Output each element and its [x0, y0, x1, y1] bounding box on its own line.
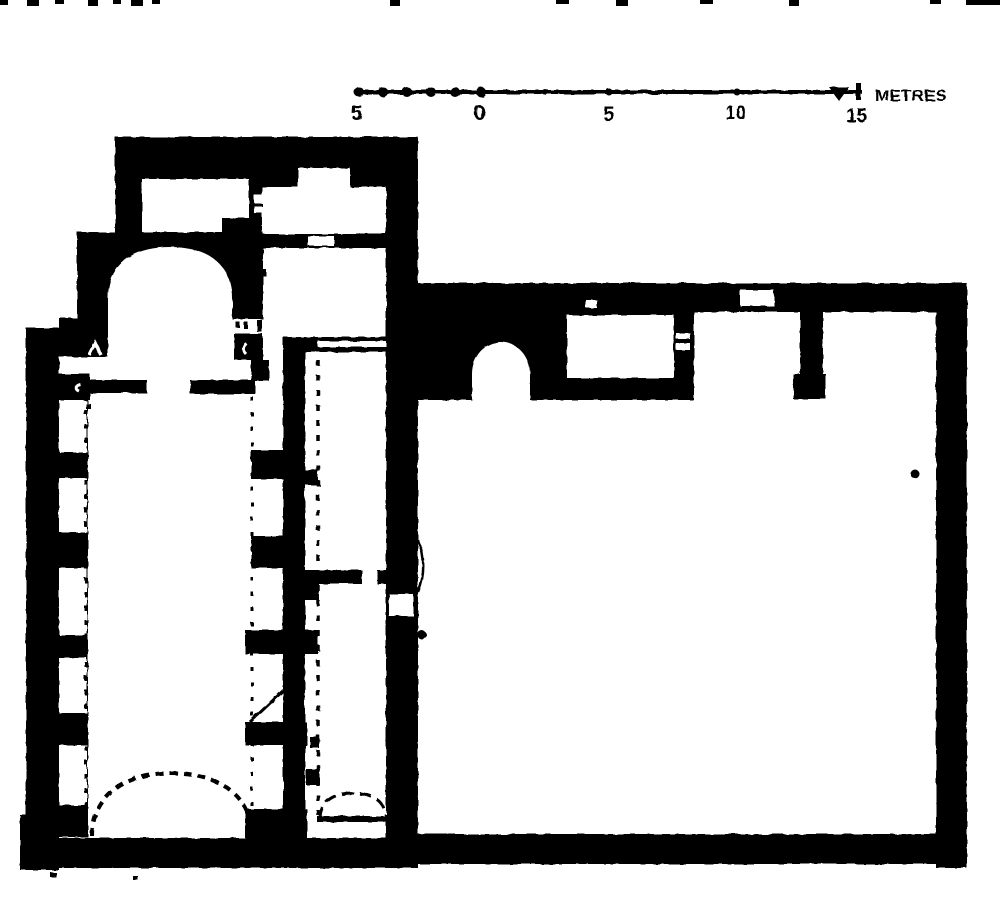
- svg-text:5: 5: [351, 102, 363, 125]
- svg-text:5: 5: [603, 103, 615, 126]
- svg-text:METRES: METRES: [875, 88, 947, 105]
- svg-text:10: 10: [725, 103, 746, 124]
- svg-text:0: 0: [474, 102, 486, 125]
- svg-text:15: 15: [846, 106, 868, 127]
